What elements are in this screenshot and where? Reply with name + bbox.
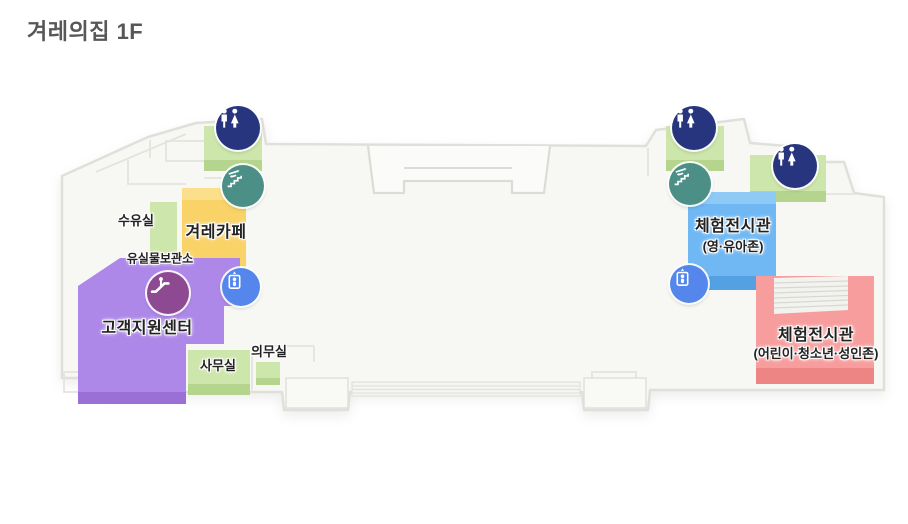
label-cafe: 겨레카페 xyxy=(186,224,247,242)
floor-map: 수유실 겨레카페 유실물보관소 고객지원센터 사무실 의무실 체험전시관 (영·… xyxy=(0,0,908,524)
room-medical xyxy=(256,362,280,385)
floor-map-canvas: 겨레의집 1F xyxy=(0,0,908,524)
escalator-icon xyxy=(147,272,189,314)
entrance-steps xyxy=(286,378,646,408)
label-medical-room: 의무실 xyxy=(251,345,287,359)
label-exhibition-children-line2: (어린이·청소년·성인존) xyxy=(754,347,879,361)
stairs-structure xyxy=(774,276,848,314)
label-exhibition-infant-line2: (영·유아존) xyxy=(703,240,764,254)
elevator-icon xyxy=(222,268,260,306)
label-customer-support-center: 고객지원센터 xyxy=(101,320,192,338)
label-exhibition-infant-line1: 체험전시관 xyxy=(695,218,771,236)
restroom-icon xyxy=(773,144,817,188)
label-nursing-room: 수유실 xyxy=(118,214,154,228)
elevator-icon xyxy=(670,265,708,303)
restroom-icon xyxy=(672,106,716,150)
stairs-icon xyxy=(669,163,711,205)
label-office: 사무실 xyxy=(200,359,236,373)
restroom-icon xyxy=(216,106,260,150)
stairs-icon xyxy=(222,165,264,207)
label-lost-and-found: 유실물보관소 xyxy=(127,252,193,265)
label-exhibition-children-line1: 체험전시관 xyxy=(778,327,854,345)
